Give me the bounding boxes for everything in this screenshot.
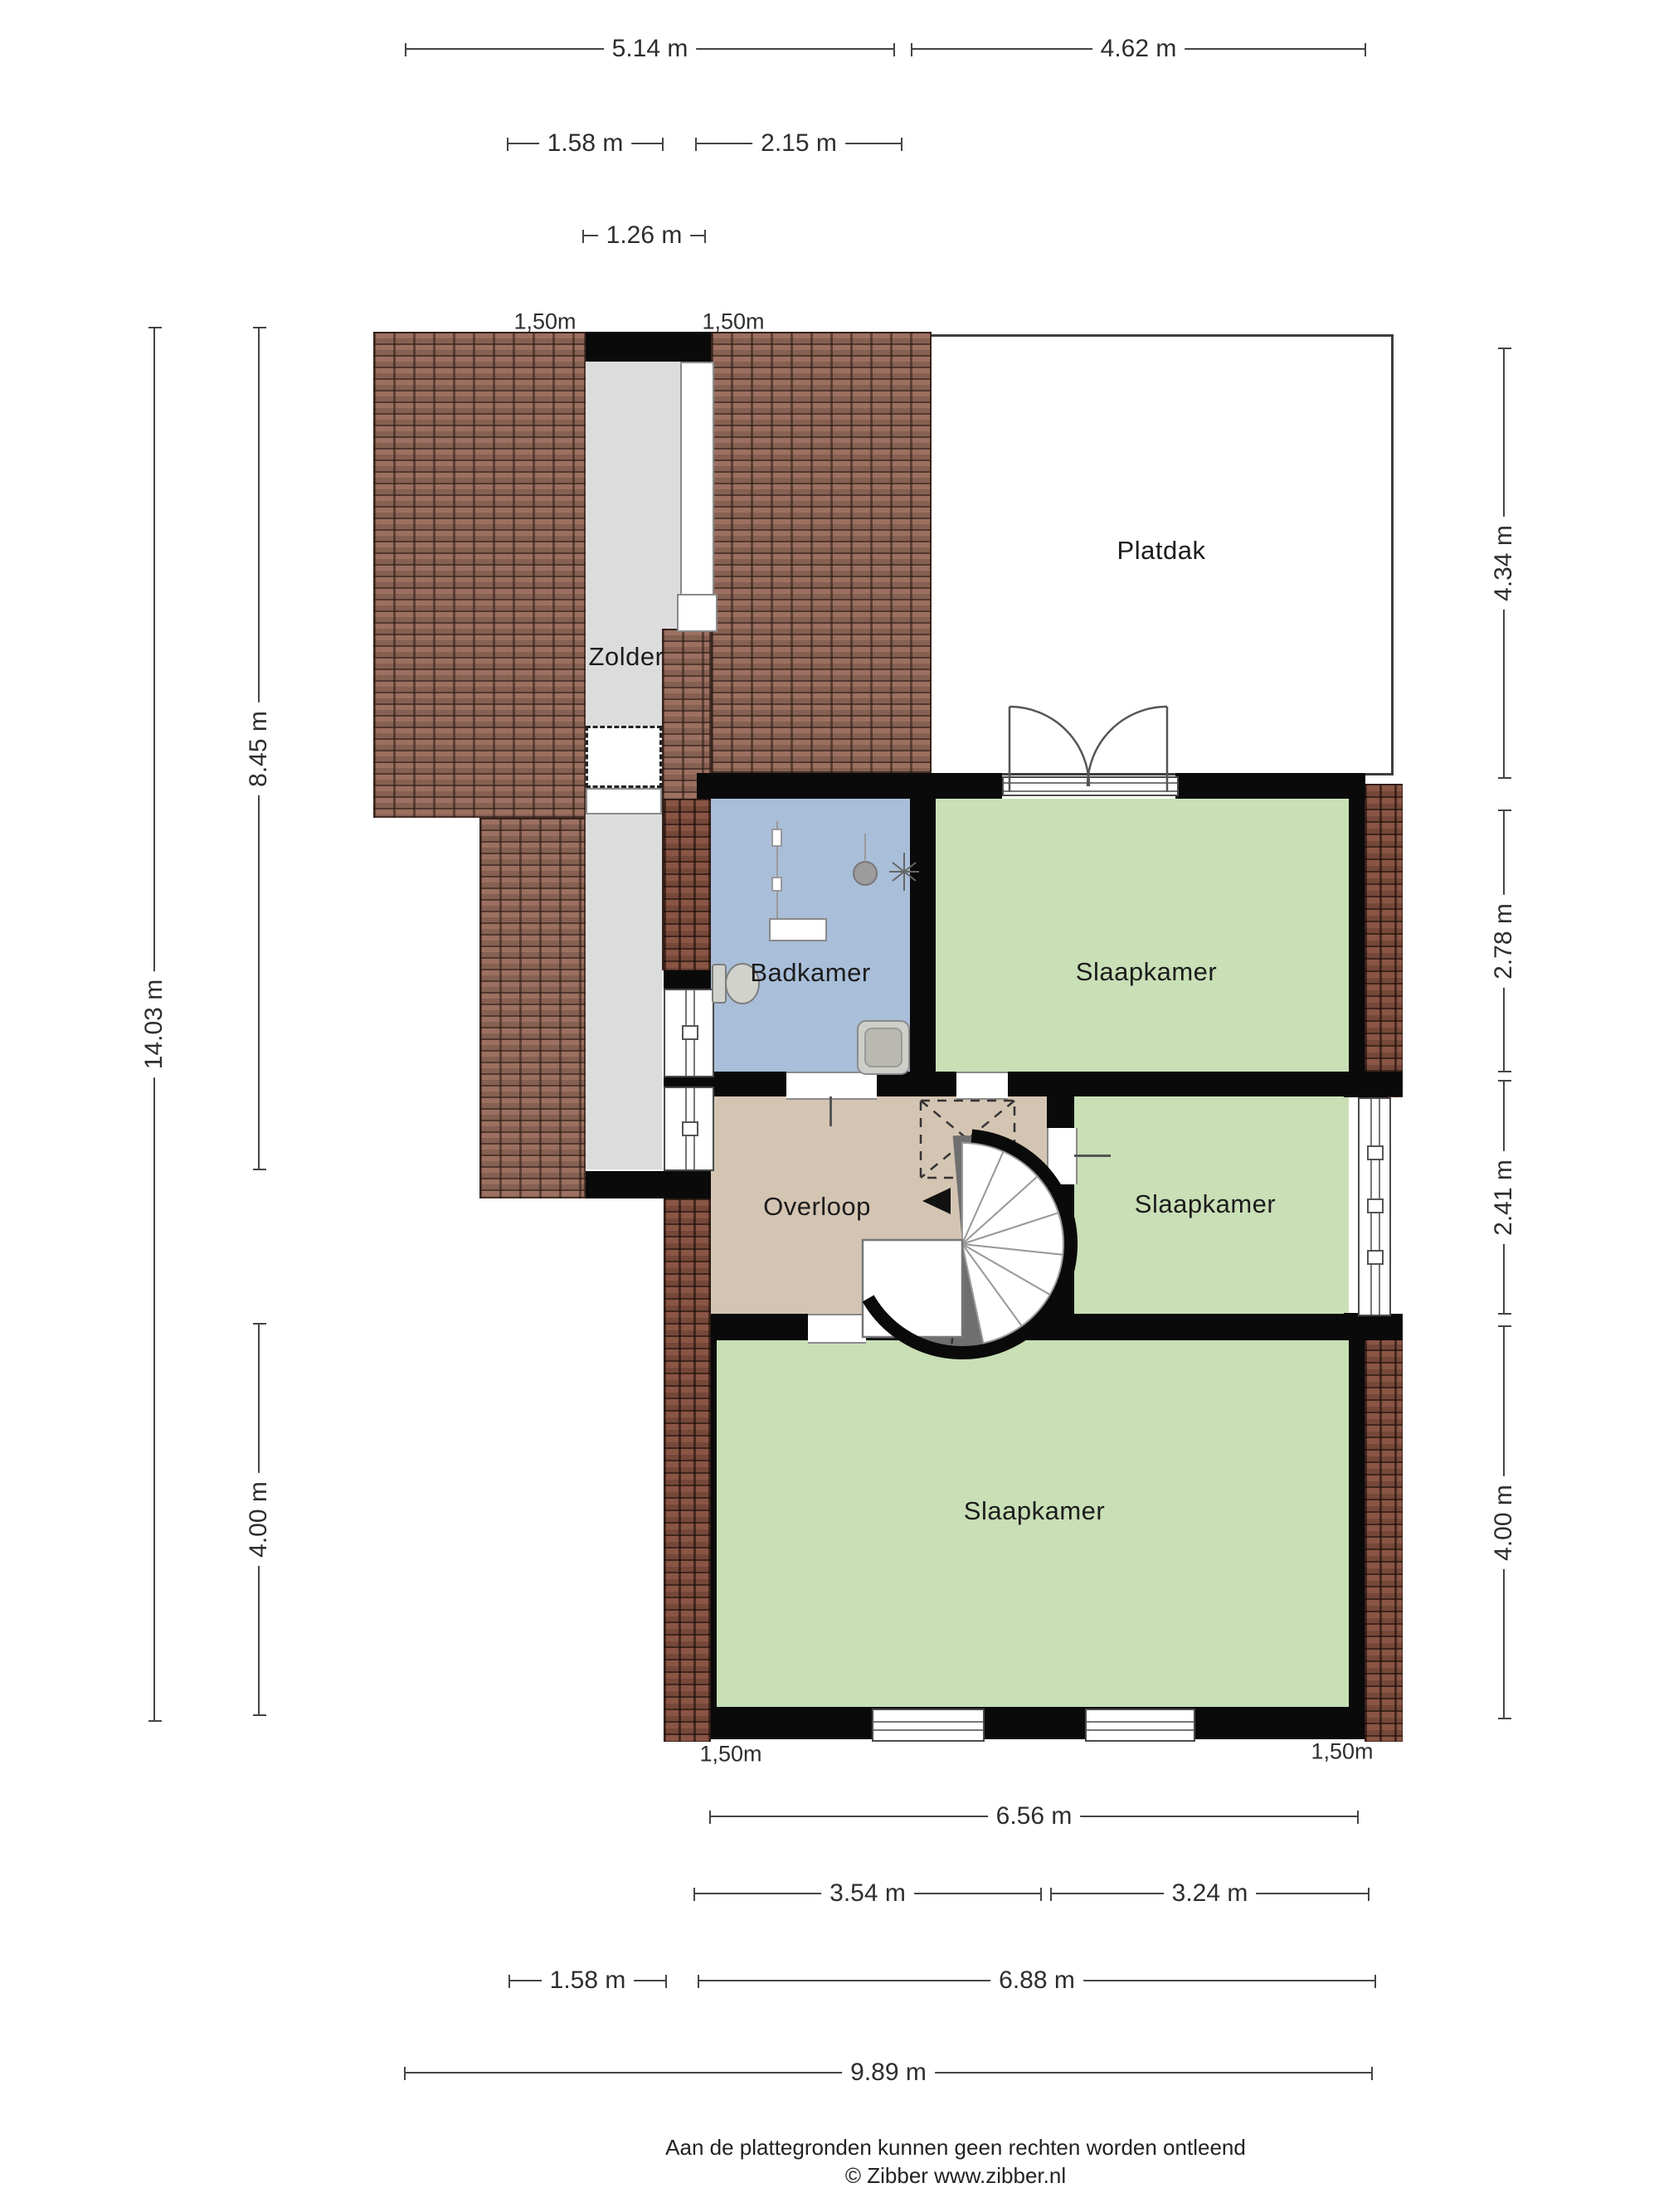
dim-top-1-58: 1.58 m <box>508 143 663 144</box>
roof-width-label-bottom-2: 1,50m <box>1311 1739 1373 1765</box>
label-badkamer: Badkamer <box>750 958 870 988</box>
roof-width-label-top-1: 1,50m <box>513 309 576 335</box>
dim-bottom-1-58: 1.58 m <box>509 1980 666 1981</box>
footer: Aan de plattegronden kunnen geen rechten… <box>375 2133 1536 2190</box>
dim-top-2-15: 2.15 m <box>696 143 902 144</box>
roof-width-label-bottom-1: 1,50m <box>699 1742 761 1767</box>
dim-bottom-9-89: 9.89 m <box>405 2072 1372 2073</box>
label-slaapkamer3: Slaapkamer <box>964 1496 1105 1526</box>
shower-head <box>854 834 919 891</box>
spiral-staircase <box>863 1135 1071 1353</box>
dim-bottom-6-56: 6.56 m <box>710 1816 1358 1817</box>
sink <box>770 821 826 941</box>
shower-tray <box>858 1021 909 1074</box>
dim-top-1-26: 1.26 m <box>583 235 705 236</box>
dim-bottom-6-88: 6.88 m <box>698 1980 1375 1981</box>
dim-bottom-3-24: 3.24 m <box>1051 1893 1369 1894</box>
dim-left-8-45: 8.45 m <box>258 328 260 1169</box>
dim-top-5-14: 5.14 m <box>406 48 894 50</box>
dim-right-2-78: 2.78 m <box>1503 810 1505 1072</box>
label-platdak: Platdak <box>1117 536 1206 566</box>
label-slaapkamer1: Slaapkamer <box>1076 957 1217 987</box>
dim-right-4-34: 4.34 m <box>1503 348 1505 778</box>
label-overloop: Overloop <box>763 1192 871 1222</box>
dim-right-2-41: 2.41 m <box>1503 1081 1505 1314</box>
dim-left-14-03: 14.03 m <box>153 328 155 1721</box>
dim-bottom-3-54: 3.54 m <box>694 1893 1041 1894</box>
floorplan-canvas: Zolder Platdak Badkamer Slaapkamer Overl… <box>0 0 1659 2212</box>
dim-left-4-00: 4.00 m <box>258 1324 260 1715</box>
label-slaapkamer2: Slaapkamer <box>1135 1189 1276 1219</box>
dim-right-4-00: 4.00 m <box>1503 1326 1505 1719</box>
roof-width-label-top-2: 1,50m <box>702 309 764 335</box>
double-door-flatroof <box>1010 707 1167 792</box>
dim-top-4-62: 4.62 m <box>912 48 1365 50</box>
label-zolder: Zolder <box>589 642 664 672</box>
footer-disclaimer: Aan de plattegronden kunnen geen rechten… <box>375 2133 1536 2161</box>
footer-credit: © Zibber www.zibber.nl <box>375 2161 1536 2190</box>
